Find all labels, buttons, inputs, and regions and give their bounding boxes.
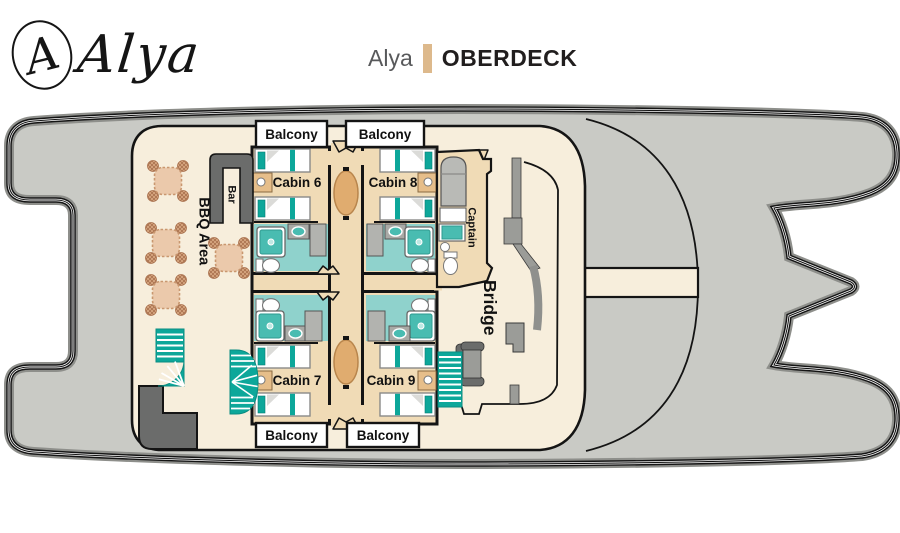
- label-balcony-bottom-1: Balcony: [256, 429, 327, 443]
- label-cabin-6: Cabin 6: [260, 176, 334, 190]
- catwalk: [570, 268, 698, 297]
- wardrobe-icon: [310, 224, 326, 256]
- captain-bed-icon: [441, 157, 466, 206]
- captain-cabin: [437, 150, 492, 287]
- deck-plan-drawing: [0, 0, 900, 533]
- label-cabin-8: Cabin 8: [356, 176, 430, 190]
- spiral-stairs-icon: [230, 350, 258, 414]
- captain-sink-icon: [441, 243, 450, 252]
- label-balcony-top-2: Balcony: [346, 128, 424, 142]
- deck-plan-page: A Alya Alya OBERDECK: [0, 0, 900, 533]
- label-bar: Bar: [226, 175, 237, 215]
- label-bridge: Bridge: [480, 268, 498, 348]
- bridge-stairs-icon: [438, 352, 462, 407]
- wardrobe-icon: [305, 311, 322, 341]
- label-cabin-7: Cabin 7: [260, 374, 334, 388]
- captain-cabinet-icon: [440, 208, 466, 222]
- captain-toilet-icon: [444, 252, 458, 275]
- wardrobe-icon: [368, 311, 385, 341]
- label-balcony-bottom-2: Balcony: [347, 429, 419, 443]
- wardrobe-icon: [367, 224, 383, 256]
- label-cabin-9: Cabin 9: [354, 374, 428, 388]
- label-balcony-top-1: Balcony: [256, 128, 327, 142]
- label-captain: Captain: [466, 198, 477, 258]
- label-bbq-area: BBQ Area: [196, 185, 211, 277]
